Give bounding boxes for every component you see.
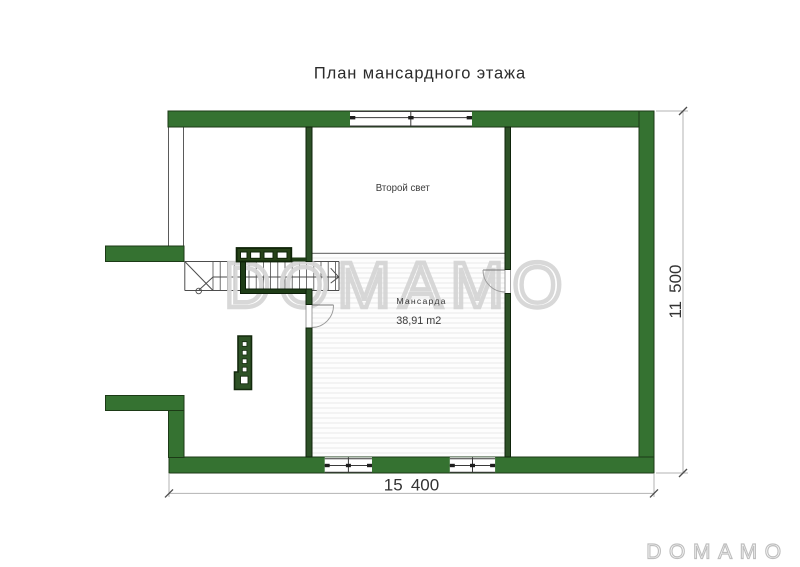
svg-text:План мансардного этажа: План мансардного этажа bbox=[314, 65, 526, 83]
svg-text:15 400: 15 400 bbox=[384, 476, 439, 495]
svg-text:11 500: 11 500 bbox=[666, 265, 685, 319]
svg-text:Второй свет: Второй свет bbox=[376, 183, 431, 194]
svg-text:DOMAMO: DOMAMO bbox=[646, 540, 788, 563]
svg-text:Мансарда: Мансарда bbox=[396, 296, 446, 306]
svg-text:38,91 m2: 38,91 m2 bbox=[396, 315, 441, 327]
